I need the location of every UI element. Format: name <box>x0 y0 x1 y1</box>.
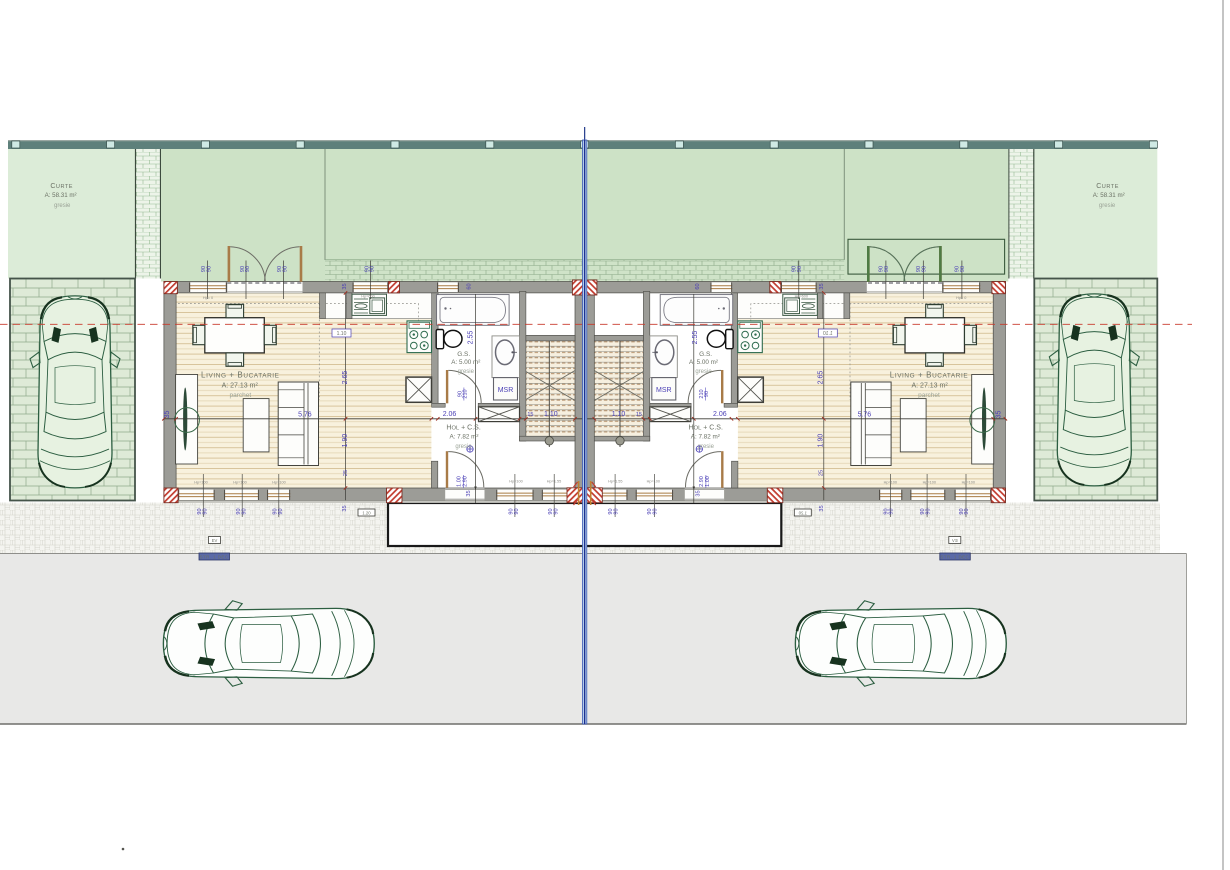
svg-text:1.10: 1.10 <box>337 331 347 337</box>
svg-text:gresie: gresie <box>698 444 715 450</box>
svg-text:90: 90 <box>955 266 961 272</box>
svg-text:Hp=600: Hp=600 <box>361 295 374 299</box>
svg-text:Hp=100: Hp=100 <box>962 481 975 485</box>
svg-text:A: 27.13 m²: A: 27.13 m² <box>912 382 949 389</box>
svg-text:60: 60 <box>695 283 701 289</box>
svg-text:A: 27.13 m²: A: 27.13 m² <box>222 382 259 389</box>
svg-text:90: 90 <box>553 508 559 514</box>
svg-text:1.00: 1.00 <box>705 476 711 487</box>
svg-text:1.90: 1.90 <box>818 434 825 448</box>
svg-text:1.20: 1.20 <box>798 510 807 515</box>
svg-text:gresie: gresie <box>695 369 712 375</box>
svg-text:90: 90 <box>964 508 970 514</box>
svg-text:EV: EV <box>212 538 218 543</box>
svg-text:HOL + C.S.: HOL + C.S. <box>689 425 723 432</box>
svg-text:MSR: MSR <box>656 387 672 394</box>
svg-text:A: 5.00 m²: A: 5.00 m² <box>689 359 718 366</box>
svg-text:90: 90 <box>922 266 928 272</box>
svg-text:parchet: parchet <box>918 392 940 399</box>
svg-text:A: 7.82 m²: A: 7.82 m² <box>449 434 478 441</box>
svg-text:90: 90 <box>370 266 376 272</box>
svg-text:90: 90 <box>245 266 251 272</box>
svg-text:Hp= 0: Hp= 0 <box>203 296 213 300</box>
svg-text:5.76: 5.76 <box>858 412 872 419</box>
svg-text:90: 90 <box>925 508 931 514</box>
svg-text:1.90: 1.90 <box>342 434 349 448</box>
svg-text:90: 90 <box>241 508 247 514</box>
svg-text:Hp=1.55: Hp=1.55 <box>608 479 622 483</box>
svg-text:35: 35 <box>819 283 825 289</box>
svg-text:35: 35 <box>996 411 1003 419</box>
svg-text:90: 90 <box>884 266 890 272</box>
svg-text:gresie: gresie <box>458 369 475 375</box>
svg-text:CURTE: CURTE <box>1096 183 1119 190</box>
svg-text:A: 58.31 m²: A: 58.31 m² <box>45 192 77 199</box>
svg-text:90: 90 <box>797 266 803 272</box>
svg-text:Hp=100: Hp=100 <box>647 479 660 483</box>
svg-text:35: 35 <box>819 505 825 511</box>
svg-text:LIVING + BUCATARIE: LIVING + BUCATARIE <box>201 371 279 380</box>
svg-text:2.90: 2.90 <box>699 476 705 487</box>
svg-text:LIVING + BUCATARIE: LIVING + BUCATARIE <box>890 371 969 380</box>
svg-text:1.20: 1.20 <box>362 510 371 515</box>
svg-text:2.55: 2.55 <box>692 331 699 345</box>
svg-text:90: 90 <box>608 508 614 514</box>
svg-text:90: 90 <box>960 266 966 272</box>
svg-text:90: 90 <box>514 508 520 514</box>
svg-text:90: 90 <box>879 266 885 272</box>
svg-text:Hp=100: Hp=100 <box>272 481 285 485</box>
svg-text:gresie: gresie <box>1099 203 1116 209</box>
svg-text:90: 90 <box>613 508 619 514</box>
svg-text:2.90: 2.90 <box>463 476 469 487</box>
svg-text:60: 60 <box>467 283 473 289</box>
svg-text:5.76: 5.76 <box>298 412 312 419</box>
svg-text:Hp= 0: Hp= 0 <box>956 296 966 300</box>
svg-text:210: 210 <box>462 389 468 398</box>
svg-text:Hp=100: Hp=100 <box>509 479 522 483</box>
svg-text:gresie: gresie <box>455 444 472 450</box>
svg-text:Hp=100: Hp=100 <box>923 481 936 485</box>
svg-text:Hp=1.55: Hp=1.55 <box>547 479 561 483</box>
svg-text:90: 90 <box>920 508 926 514</box>
svg-text:Hp=100: Hp=100 <box>233 481 246 485</box>
svg-text:35: 35 <box>695 490 701 496</box>
svg-text:90: 90 <box>883 508 889 514</box>
svg-text:1.10: 1.10 <box>544 411 558 418</box>
svg-text:1.10: 1.10 <box>612 411 626 418</box>
svg-text:90: 90 <box>959 508 965 514</box>
svg-text:35: 35 <box>466 490 472 496</box>
svg-text:HOL + C.S.: HOL + C.S. <box>446 425 480 432</box>
svg-text:G.S.: G.S. <box>699 351 712 358</box>
svg-text:Hp=100: Hp=100 <box>194 481 207 485</box>
svg-text:90: 90 <box>283 266 289 272</box>
svg-text:35: 35 <box>342 505 348 511</box>
svg-text:35: 35 <box>342 283 348 289</box>
svg-text:Hp=600: Hp=600 <box>795 295 808 299</box>
svg-text:2.65: 2.65 <box>342 371 349 385</box>
svg-text:25: 25 <box>819 470 825 476</box>
svg-text:A: 7.82 m²: A: 7.82 m² <box>691 434 720 441</box>
svg-text:15: 15 <box>636 412 642 418</box>
svg-text:15: 15 <box>527 412 533 418</box>
svg-text:STR. 1 DEC: STR. 1 DEC <box>940 554 969 559</box>
svg-text:1.10: 1.10 <box>823 331 833 337</box>
svg-text:A: 58.31 m²: A: 58.31 m² <box>1093 192 1125 199</box>
svg-text:90: 90 <box>647 508 653 514</box>
svg-text:STR. 1 DEC: STR. 1 DEC <box>200 554 229 559</box>
svg-text:CURTE: CURTE <box>50 183 73 190</box>
svg-text:2.65: 2.65 <box>818 371 825 385</box>
svg-text:MSR: MSR <box>498 387 514 394</box>
svg-text:90: 90 <box>792 266 798 272</box>
svg-text:Hp=100: Hp=100 <box>884 481 897 485</box>
svg-text:90: 90 <box>203 508 209 514</box>
svg-text:2.06: 2.06 <box>443 411 457 418</box>
svg-text:25: 25 <box>343 470 349 476</box>
svg-text:2.06: 2.06 <box>713 411 727 418</box>
svg-text:90: 90 <box>278 508 284 514</box>
svg-text:parchet: parchet <box>229 392 251 399</box>
svg-text:90: 90 <box>207 266 213 272</box>
svg-text:35: 35 <box>164 411 171 419</box>
svg-text:A: 5.00 m²: A: 5.00 m² <box>451 359 480 366</box>
svg-text:gresie: gresie <box>54 203 71 209</box>
svg-text:2.55: 2.55 <box>467 331 474 345</box>
svg-text:210: 210 <box>699 389 705 398</box>
svg-text:90: 90 <box>653 508 659 514</box>
svg-text:G.S.: G.S. <box>457 351 470 358</box>
svg-text:EV: EV <box>952 538 958 543</box>
svg-text:90: 90 <box>889 508 895 514</box>
svg-text:90: 90 <box>916 266 922 272</box>
